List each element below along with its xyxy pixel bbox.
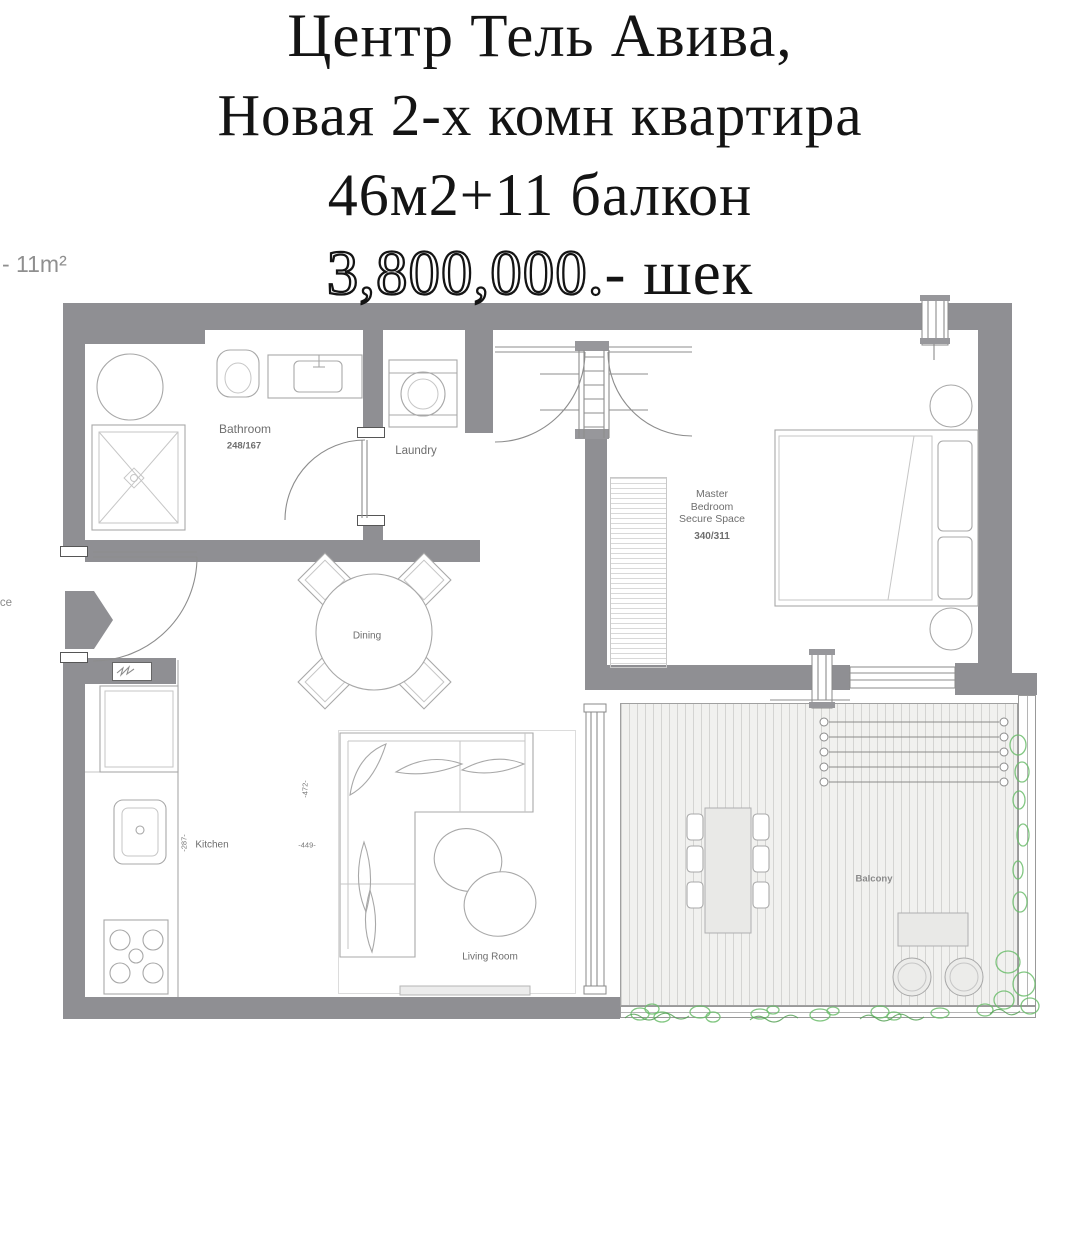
stove <box>104 920 168 994</box>
entrance-door <box>93 552 197 661</box>
kitchen-sink <box>114 800 166 864</box>
master-line-2: Bedroom <box>679 501 745 514</box>
panel-squiggle <box>117 667 134 675</box>
balcony-table <box>705 808 751 933</box>
master-dims: 340/311 <box>679 531 745 544</box>
price-number: 3,800,000. <box>327 238 605 308</box>
dim-kitchen-depth: -287- <box>180 834 189 852</box>
sink-vanity <box>268 355 362 398</box>
bathroom-door <box>285 440 367 520</box>
title-line-3: 46м2+11 балкон <box>0 165 1080 225</box>
master-line-1: Master <box>679 488 745 501</box>
master-line-3: Secure Space <box>679 513 745 526</box>
nightstand-bottom <box>930 608 972 650</box>
dim-living-width: -472- <box>301 780 310 798</box>
hall-door-left <box>495 347 585 442</box>
kitchen-label: Kitchen <box>195 840 228 851</box>
price-currency: - шек <box>604 238 753 308</box>
toilet <box>217 350 259 397</box>
balcony-stools <box>893 958 983 996</box>
clothesline <box>820 718 1008 786</box>
balcony-label: Balcony <box>856 874 893 885</box>
title-price-line: 3,800,000.- шек <box>0 242 1080 305</box>
laundry-label: Laundry <box>395 445 437 457</box>
bed <box>775 430 978 606</box>
dining-label: Dining <box>353 631 381 642</box>
tv-console <box>400 986 530 995</box>
poufs <box>426 820 542 943</box>
bedroom-balcony-window <box>770 649 955 708</box>
listing-image: { "title": { "line1": "Центр Тель Авива,… <box>0 0 1080 1238</box>
secure-window-ladder <box>540 341 648 439</box>
bedroom-door <box>608 347 692 436</box>
living-room-label: Living Room <box>462 952 518 963</box>
nightstand-top <box>930 385 972 427</box>
living-balcony-window <box>584 704 606 994</box>
bathroom-label: Bathroom <box>219 422 271 436</box>
entrance-label: Entrance <box>0 597 12 609</box>
bathroom-dims: 248/167 <box>227 441 261 452</box>
washing-machine <box>389 360 457 427</box>
title-line-2: Новая 2-х комн квартира <box>0 86 1080 145</box>
shower <box>92 425 185 530</box>
entrance-arrow-icon <box>65 591 113 649</box>
master-bedroom-label: Master Bedroom Secure Space 340/311 <box>679 488 745 543</box>
bathtub <box>97 354 163 420</box>
dim-living-depth: -449- <box>298 841 316 850</box>
balcony-bench <box>898 913 968 946</box>
fridge <box>100 686 178 772</box>
title-line-1: Центр Тель Авива, <box>0 6 1080 67</box>
